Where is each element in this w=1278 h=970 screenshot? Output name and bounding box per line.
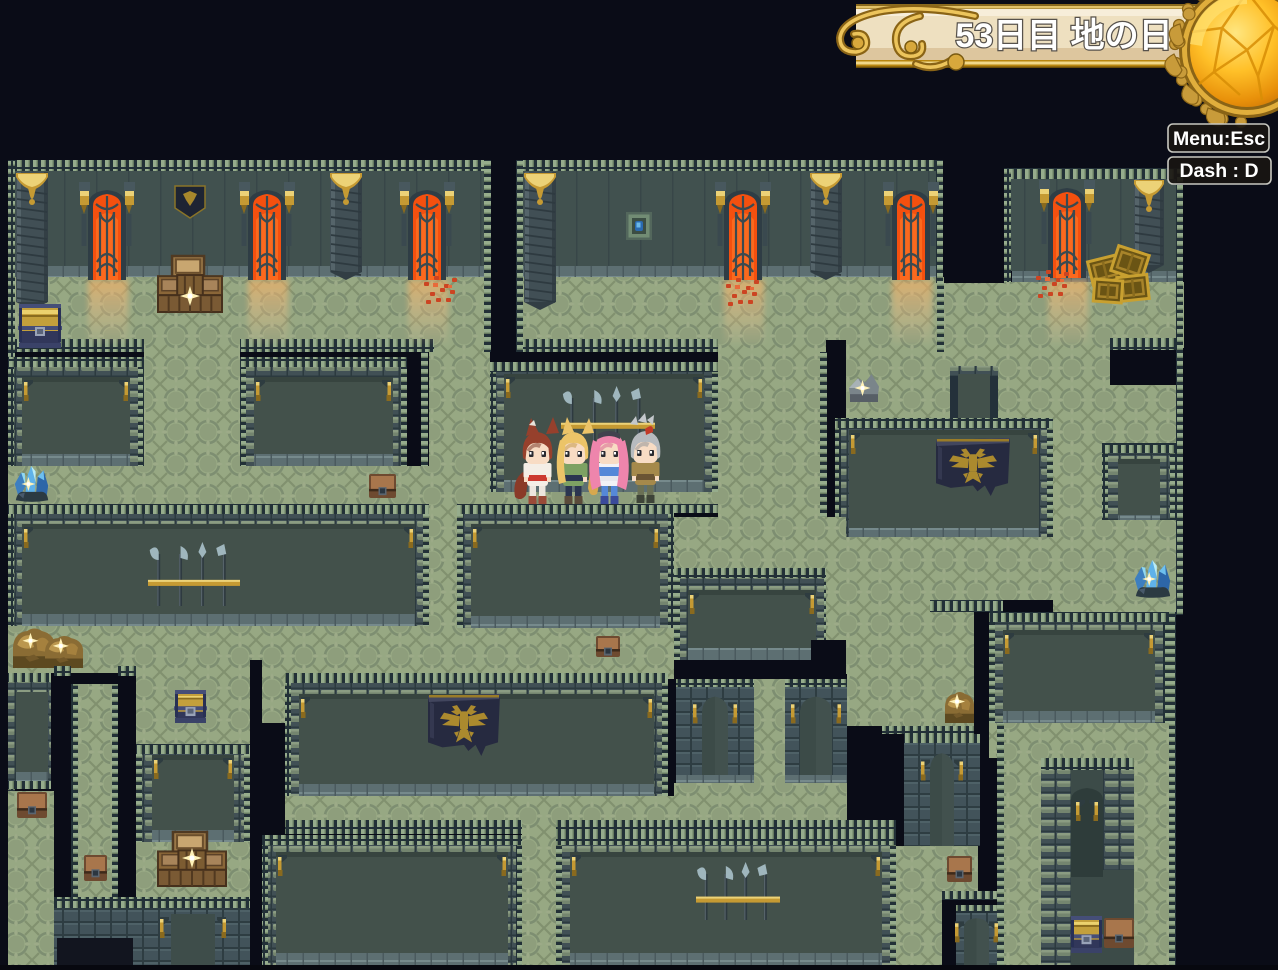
svg-text:53日目 地の日: 53日目 地の日 (955, 17, 1172, 55)
svg-text:Menu:Esc: Menu:Esc (1173, 128, 1265, 150)
svg-text:Dash : D: Dash : D (1179, 160, 1258, 182)
